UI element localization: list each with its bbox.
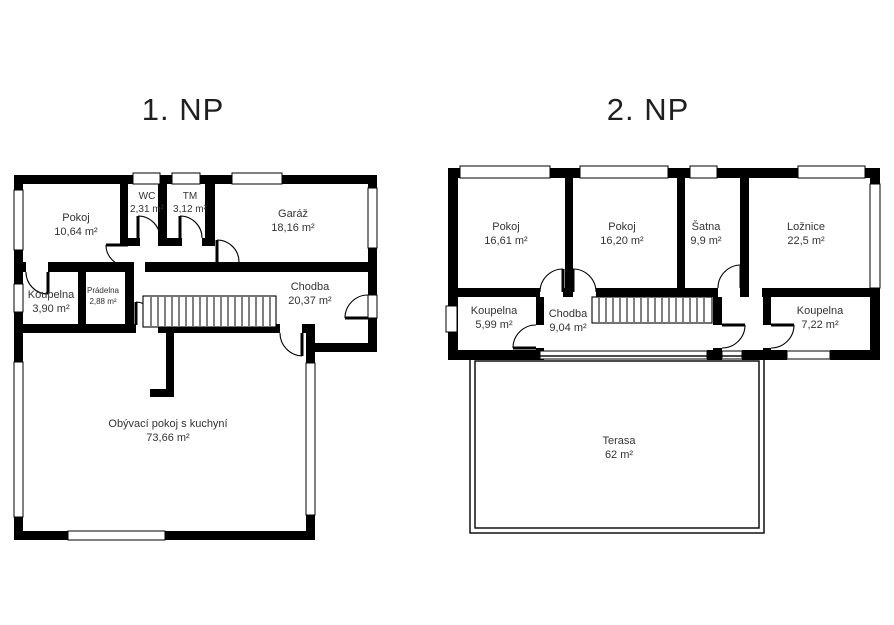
room-area: 7,22 m² [797,318,844,332]
room-name: Garáž [271,207,314,221]
room-name: Pokoj [600,220,643,234]
room-area: 9,04 m² [549,321,588,335]
room-name: Chodba [288,280,331,294]
room-label-pokoj-f1: Pokoj 10,64 m² [54,211,97,239]
room-area: 2,88 m² [87,296,119,307]
room-name: Koupelna [471,304,518,318]
room-area: 3,90 m² [28,302,75,316]
room-area: 10,64 m² [54,225,97,239]
room-name: Prádelna [87,285,119,296]
room-area: 9,9 m² [690,234,721,248]
room-name: WC [130,190,164,203]
room-label-pokoj1-f2: Pokoj 16,61 m² [484,220,527,248]
floor1-stairs [143,296,276,327]
room-label-chodba-f1: Chodba 20,37 m² [288,280,331,308]
floorplan-drawing [0,0,894,625]
room-label-koupelna1-f2: Koupelna 5,99 m² [471,304,518,332]
room-area: 18,16 m² [271,221,314,235]
room-name: Koupelna [28,288,75,302]
room-label-loznice: Ložnice 22,5 m² [787,220,825,248]
room-area: 73,66 m² [108,431,227,445]
room-label-terasa: Terasa 62 m² [602,434,635,462]
room-area: 62 m² [602,448,635,462]
room-name: Chodba [549,307,588,321]
room-area: 16,20 m² [600,234,643,248]
room-name: Koupelna [797,304,844,318]
room-label-chodba-f2: Chodba 9,04 m² [549,307,588,335]
room-name: Terasa [602,434,635,448]
room-label-pokoj2-f2: Pokoj 16,20 m² [600,220,643,248]
room-name: TM [173,190,207,203]
room-name: Šatna [690,220,721,234]
room-label-wc: WC 2,31 m² [130,190,164,216]
room-area: 20,37 m² [288,294,331,308]
room-name: Pokoj [484,220,527,234]
room-label-koupelna-f1: Koupelna 3,90 m² [28,288,75,316]
room-label-koupelna2-f2: Koupelna 7,22 m² [797,304,844,332]
room-name: Ložnice [787,220,825,234]
room-label-tm: TM 3,12 m² [173,190,207,216]
room-area: 16,61 m² [484,234,527,248]
room-label-satna: Šatna 9,9 m² [690,220,721,248]
room-label-obyvaci-pokoj: Obývací pokoj s kuchyní 73,66 m² [108,417,227,445]
room-name: Obývací pokoj s kuchyní [108,417,227,431]
room-area: 5,99 m² [471,318,518,332]
room-label-garaz: Garáž 18,16 m² [271,207,314,235]
room-area: 2,31 m² [130,203,164,216]
room-area: 22,5 m² [787,234,825,248]
floorplan-canvas: 1. NP 2. NP [0,0,894,625]
floor2-stairs [592,297,712,323]
room-area: 3,12 m² [173,203,207,216]
room-name: Pokoj [54,211,97,225]
room-label-pradelna: Prádelna 2,88 m² [87,285,119,307]
